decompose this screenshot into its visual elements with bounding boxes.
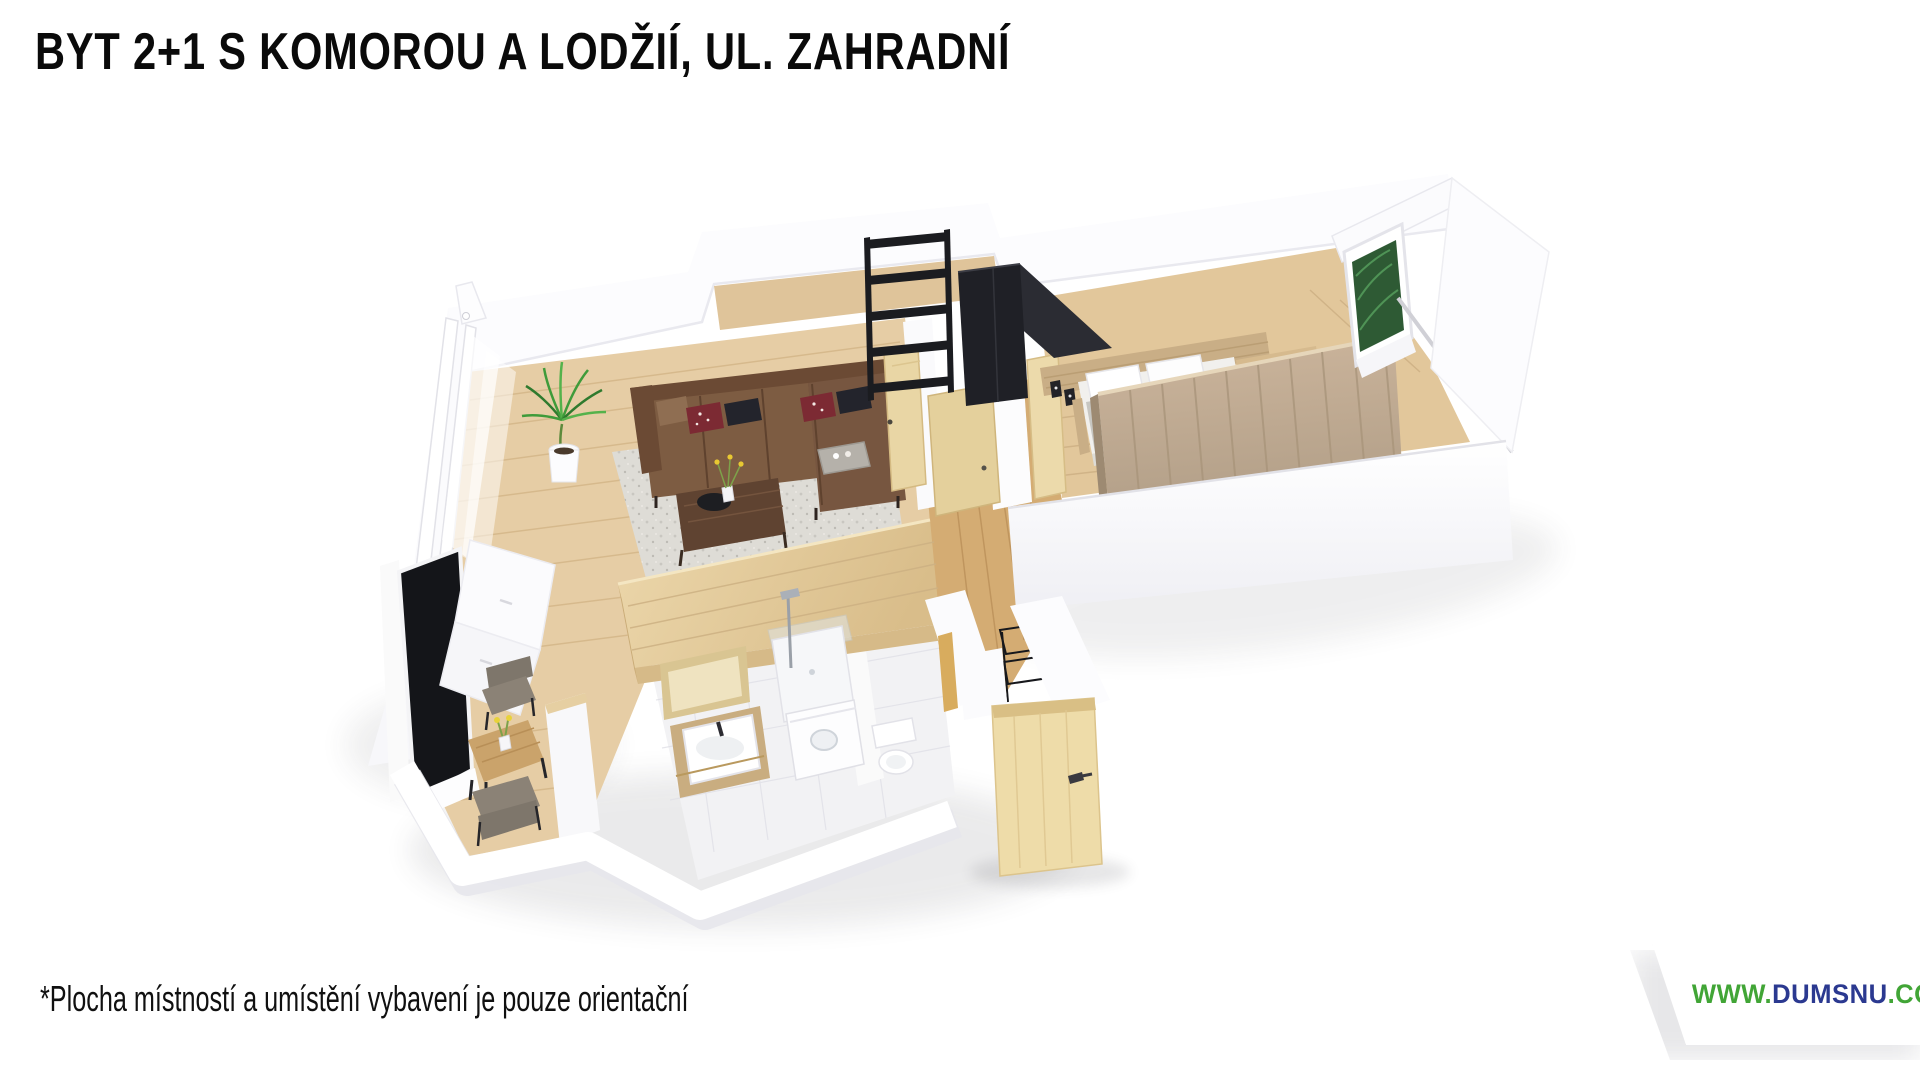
- disclaimer-note: *Plocha místností a umístění vybavení je…: [40, 978, 689, 1020]
- watermark-badge: WWW.DUMSNU.COM: [1652, 943, 1920, 1045]
- floorplan-render: [0, 0, 1920, 1080]
- watermark-url: WWW.DUMSNU.COM: [1652, 979, 1920, 1010]
- watermark-www: WWW.: [1692, 979, 1772, 1009]
- curtain-knob: [463, 313, 470, 320]
- watermark-tld: .COM: [1888, 979, 1920, 1009]
- watermark-domain: DUMSNU: [1772, 979, 1887, 1009]
- real-estate-floorplan-page: BYT 2+1 S KOMOROU A LODŽIÍ, UL. ZAHRADNÍ: [0, 0, 1920, 1080]
- living-room-door: [884, 348, 926, 491]
- hall-door-open: [928, 384, 1000, 516]
